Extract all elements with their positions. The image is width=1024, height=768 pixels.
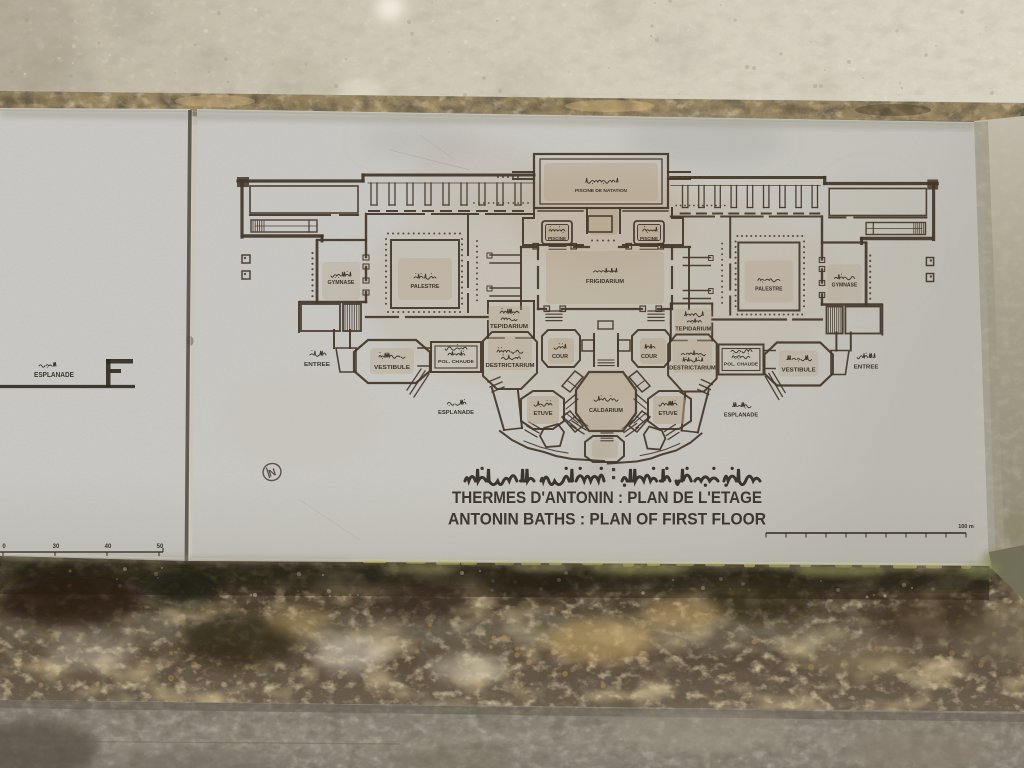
svg-text:PISCINE: PISCINE [548, 236, 566, 241]
svg-text:30: 30 [53, 544, 60, 550]
svg-text:THERMES D'ANTONIN : PLAN DE L': THERMES D'ANTONIN : PLAN DE L'ETAGE [452, 489, 762, 507]
svg-text:TEPIDARIUM: TEPIDARIUM [490, 324, 528, 330]
svg-text:ENTREE: ENTREE [854, 365, 879, 371]
svg-text:VESTIBULE: VESTIBULE [782, 368, 817, 374]
svg-text:POL. CHAUDE: POL. CHAUDE [438, 359, 475, 365]
svg-text:ENTREE: ENTREE [304, 362, 331, 368]
svg-text:ETUVE: ETUVE [534, 411, 554, 417]
svg-text:ETUVE: ETUVE [659, 411, 679, 417]
svg-text:DESTRICTARIUM: DESTRICTARIUM [669, 366, 716, 372]
svg-text:PISCINE DE NATATION: PISCINE DE NATATION [575, 188, 628, 193]
svg-text:PALESTRE: PALESTRE [411, 284, 441, 290]
svg-text:TEPIDARIUM: TEPIDARIUM [675, 327, 711, 333]
svg-text:VESTIBULE: VESTIBULE [374, 365, 411, 371]
svg-text:PALESTRE: PALESTRE [755, 287, 783, 293]
svg-text:GYMNASE: GYMNASE [832, 283, 858, 289]
svg-text:100 m: 100 m [958, 524, 974, 530]
svg-text:PISCINE: PISCINE [640, 236, 658, 241]
svg-text:40: 40 [105, 544, 112, 550]
svg-text:CALDARIUM: CALDARIUM [589, 408, 623, 414]
svg-text:GYMNASE: GYMNASE [328, 280, 356, 286]
svg-text:ANTONIN BATHS : PLAN OF FIRST: ANTONIN BATHS : PLAN OF FIRST FLOOR [448, 511, 766, 529]
svg-text:ESPLANADE: ESPLANADE [34, 372, 74, 379]
svg-text:DESTRICTARIUM: DESTRICTARIUM [486, 363, 535, 369]
svg-text:POL. CHAUDE: POL. CHAUDE [724, 362, 759, 368]
svg-text:COUR: COUR [552, 354, 568, 360]
svg-text:FRIGIDARIUM: FRIGIDARIUM [586, 279, 624, 285]
svg-text:COUR: COUR [641, 354, 657, 360]
svg-text:ESPLANADE: ESPLANADE [724, 413, 759, 419]
svg-text:ESPLANADE: ESPLANADE [438, 410, 475, 416]
